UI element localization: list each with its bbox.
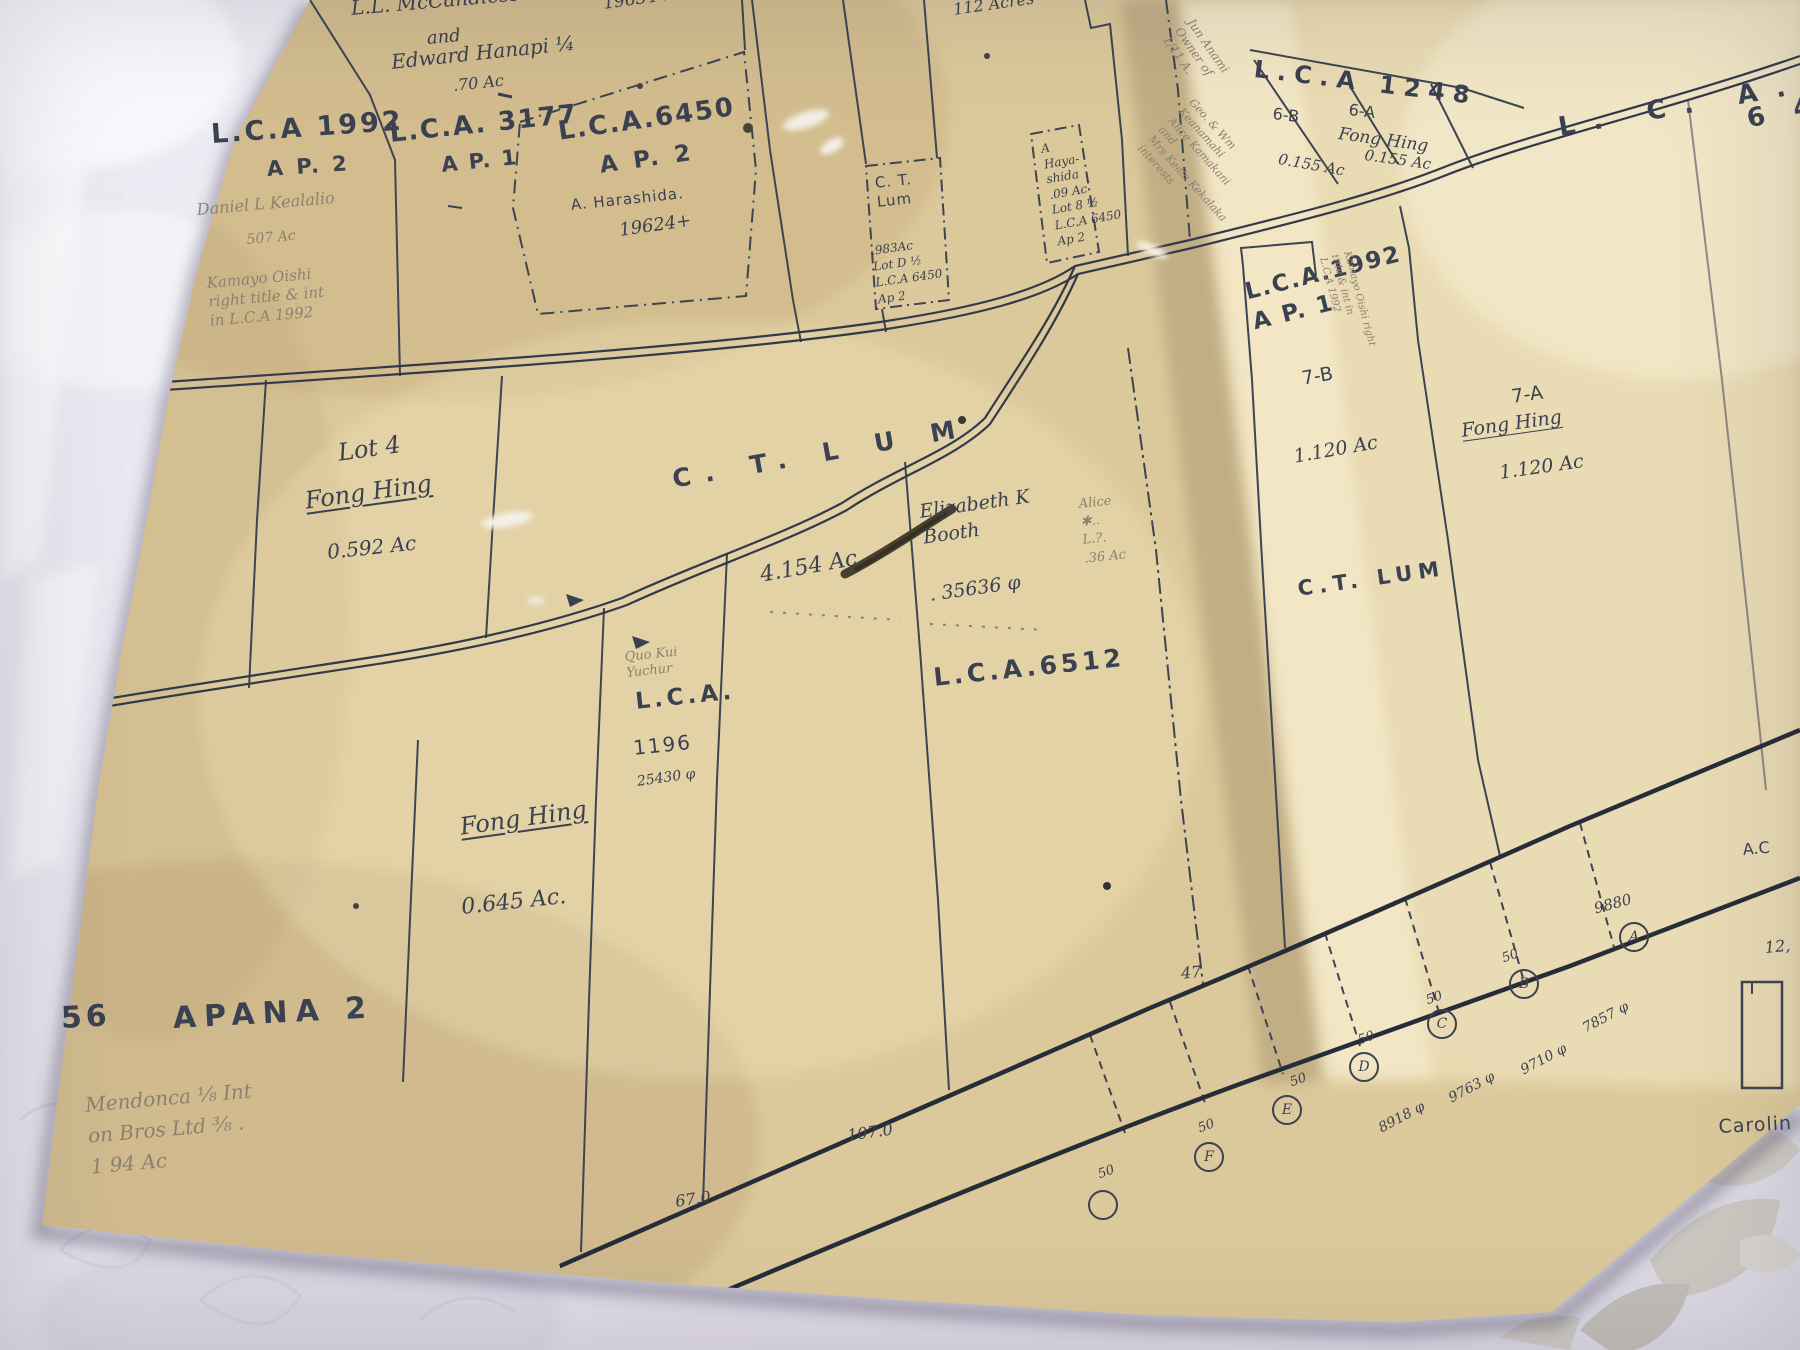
label-8918: 8918 φ — [1376, 1099, 1428, 1138]
label-50-2: 50 — [1424, 988, 1445, 1009]
label-ctlum-box: C. T. Lum — [874, 170, 915, 211]
label-ac: A.C — [1742, 838, 1771, 860]
photo-of-survey-map: L.L. McCandless ¾ and Edward Hanapi ¼ .7… — [0, 0, 1800, 1350]
lot-circle-e: E — [1272, 1095, 1302, 1125]
label-0155ac-left: 0.155 Ac — [1277, 150, 1346, 180]
label-25430: 25430 φ — [636, 766, 697, 792]
label-35636: . 35636 φ — [928, 571, 1022, 607]
label-1120ac-7b: 1.120 Ac — [1292, 431, 1380, 469]
label-6a: 6-A — [1348, 100, 1377, 123]
label-107-0: 107.0 — [846, 1120, 894, 1146]
label-fong-hing-mid: Fong Hing — [458, 794, 589, 841]
label-lca-1196-header: L.C.A. — [634, 678, 736, 717]
label-67-0: 67.0 — [674, 1187, 712, 1212]
label-hayashida-box: A Haya- shida .09 Ac Lot 8 ½ L.C.A 6450 … — [1040, 130, 1125, 249]
lot-circle-a: A — [1619, 922, 1649, 952]
label-lca-6512: L.C.A.6512 — [932, 642, 1126, 693]
label-12: 12, — [1764, 936, 1791, 958]
lot-circle-b: B — [1509, 969, 1539, 999]
lot-circle-partial — [1088, 1190, 1118, 1220]
label-ctlum-right: C.T. LUM — [1296, 555, 1447, 602]
label-4154ac: 4.154 Ac. — [758, 544, 866, 589]
label-50-5: 50 — [1196, 1116, 1217, 1137]
label-harashida: A. Harashida. — [570, 184, 685, 214]
lot-letter-e: E — [1282, 1102, 1292, 1118]
label-lot4: Lot 4 — [336, 429, 403, 467]
lot-circle-f: F — [1194, 1142, 1224, 1172]
lot-circle-d: D — [1349, 1052, 1379, 1082]
label-507ac: 507 Ac — [246, 228, 296, 250]
label-70ac: .70 Ac — [452, 71, 505, 96]
label-ctlum-main: C. T. L U M — [670, 412, 971, 495]
lot-letter-d: D — [1358, 1059, 1369, 1075]
label-apana-2: APANA 2 — [172, 989, 375, 1037]
label-50-4: 50 — [1288, 1070, 1309, 1091]
label-112-acres: 112 Acres — [952, 0, 1035, 20]
label-hanapi: Edward Hanapi ¼ — [390, 31, 576, 75]
label-lca-6450: L.C.A.6450 — [556, 91, 737, 148]
label-apana-56: 56 — [60, 997, 112, 1037]
label-19634: 19634+ — [602, 0, 673, 15]
lot-letter-c: C — [1437, 1016, 1448, 1032]
label-caroline: Carolin — [1718, 1112, 1793, 1140]
label-ctlum-box-detail: .983Ac Lot D ½ L.C.A 6450 Ap 2 — [870, 234, 946, 307]
label-6b: 6-B — [1272, 104, 1301, 127]
label-7857: 7857 φ — [1580, 999, 1632, 1038]
label-quokui-yuchur: Quo Kui Yuchur — [624, 644, 680, 682]
label-ap2-1992: A P. 2 — [266, 150, 351, 182]
label-lca-3177: L.C.A. 3177 — [388, 98, 580, 150]
lot-circle-c: C — [1427, 1009, 1457, 1039]
label-9763: 9763 φ — [1446, 1069, 1498, 1108]
label-keanamahi-note: Geo. & Wm Keanamahi Alice Kamakani and M… — [1135, 96, 1271, 234]
label-1196: 1196 — [632, 730, 693, 761]
label-9880: 9880 — [1592, 890, 1634, 918]
label-fong-hing-7a: Fong Hing — [1460, 406, 1563, 444]
label-mccandless: L.L. McCandless ¾ — [350, 0, 546, 21]
label-7b: 7-B — [1300, 363, 1335, 392]
lot-letter-f: F — [1204, 1149, 1214, 1165]
label-elizabeth-booth: Elizabeth K Booth — [918, 485, 1035, 551]
label-0645ac: 0.645 Ac. — [460, 883, 567, 921]
label-1120ac-7a: 1.120 Ac — [1498, 450, 1585, 485]
label-mendonca-note: Mendonca ⅛ Int on Bros Ltd ⅜ . 1 94 Ac — [84, 1075, 258, 1182]
lot-letter-a: A — [1629, 929, 1639, 945]
label-50-1: 50 — [1500, 946, 1521, 967]
label-47: 47 — [1180, 962, 1202, 984]
lot-letter-b: B — [1519, 976, 1529, 992]
label-ap2-6450: A P. 2 — [598, 139, 696, 181]
label-daniel-kealalio: Daniel L Kealalio — [196, 188, 335, 220]
label-alice-note: Alice ✱.. L.?. .36 Ac — [1078, 492, 1127, 569]
label-19624: 19624+ — [618, 210, 693, 242]
label-9710: 9710 φ — [1518, 1041, 1570, 1080]
label-fong-hing-lot4: Fong Hing — [303, 468, 434, 515]
label-50-3: 50 — [1356, 1028, 1377, 1049]
label-0592ac: 0.592 Ac — [326, 531, 417, 565]
label-kamayo-oishi-note: Kamayo Oishi right title & int in L.C.A … — [206, 264, 326, 330]
label-7a: 7-A — [1510, 382, 1545, 410]
map-labels: L.L. McCandless ¾ and Edward Hanapi ¼ .7… — [0, 0, 1800, 1350]
label-ap1-3177: A P. 1 — [440, 144, 519, 178]
label-jun-anami-note: Jun Anami Owner of 1/11 A. — [1159, 16, 1232, 93]
label-50-6: 50 — [1096, 1162, 1117, 1183]
label-lca-1992: L.C.A 1992 — [210, 105, 405, 152]
